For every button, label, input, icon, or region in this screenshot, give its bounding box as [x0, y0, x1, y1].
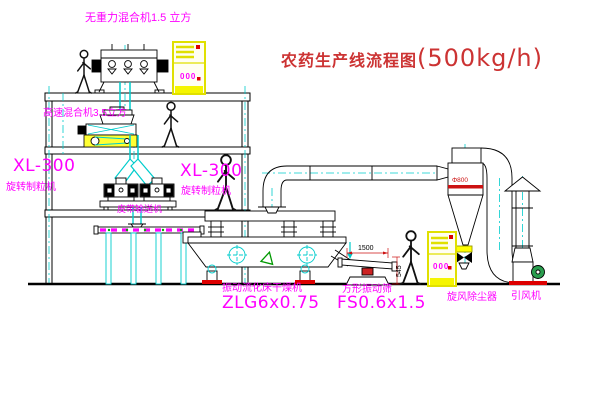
cabinet-2-display: 000: [433, 263, 449, 271]
dim-cyclone-dia: Φ800: [452, 178, 468, 185]
granulator-left: [104, 178, 138, 201]
label-dryer-model: ZLG6x0.75: [222, 295, 320, 312]
diagram-canvas: 农药生产线流程图 (500kg/h) 无重力混合机1.5 立方 高速混合机3.5…: [0, 0, 600, 403]
label-granulator-name-right: 旋转制粒机: [181, 187, 231, 197]
diagram-title-text: 农药生产线流程图: [281, 47, 417, 71]
control-cabinet-2: [428, 232, 456, 286]
diagram-title-capacity: (500kg/h): [417, 44, 543, 72]
dim-sieve-height: 545: [396, 265, 403, 277]
label-cyclone: 旋风除尘器: [447, 293, 497, 303]
person-near-sieve: [401, 231, 421, 284]
label-granulator-model-left: XL-300: [13, 158, 75, 175]
label-belt-conveyor: 皮带输送机: [117, 205, 162, 214]
control-cabinet-1: [173, 42, 205, 94]
label-gravity-free-mixer: 无重力混合机1.5 立方: [85, 13, 191, 24]
diagram-title: 农药生产线流程图 (500kg/h): [281, 44, 543, 72]
induced-draft-fan: [505, 177, 547, 285]
label-sieve-model: FS0.6x1.5: [337, 295, 426, 312]
dim-sieve-width: 1500: [358, 245, 374, 252]
vibrating-sieve: [338, 248, 400, 285]
fluid-bed-dryer: [183, 211, 353, 284]
label-fan: 引风机: [511, 292, 541, 302]
person-top-floor: [76, 50, 92, 93]
cyclone: [448, 148, 522, 283]
label-high-speed-mixer: 高速混合机3.5立方: [43, 109, 127, 119]
label-granulator-model-right: XL-300: [180, 163, 242, 180]
cabinet-1-display: 000: [180, 73, 196, 81]
person-second-floor: [162, 102, 179, 147]
label-granulator-name-left: 旋转制粒机: [6, 183, 56, 193]
gravity-free-mixer: [92, 44, 168, 112]
